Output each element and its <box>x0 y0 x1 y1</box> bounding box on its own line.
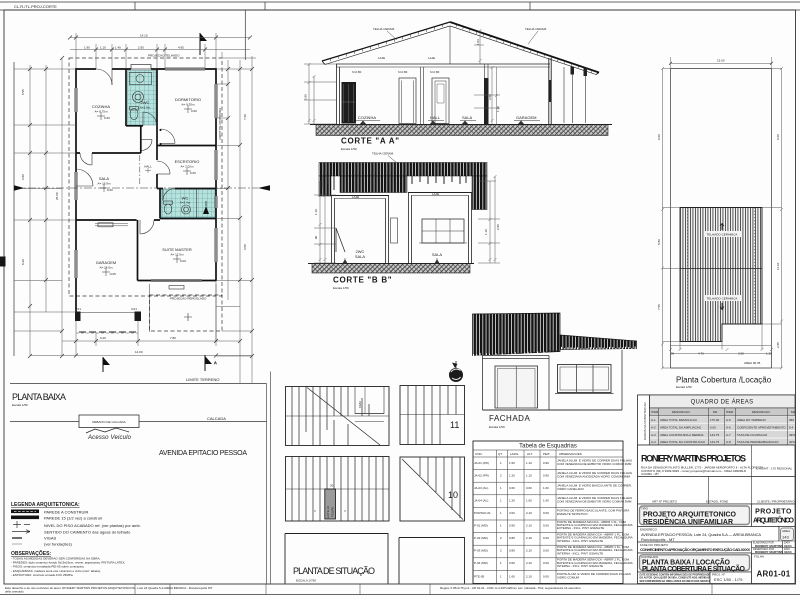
svg-text:COM VENEZIANA ANODIZADA VIDRO: COM VENEZIANA ANODIZADA VIDRO COMUM 3MM <box>557 475 631 479</box>
svg-text:9.60: 9.60 <box>776 134 780 140</box>
svg-text:HALL: HALL <box>144 165 152 169</box>
svg-text:0.60: 0.60 <box>509 561 515 565</box>
svg-text:V.01: V.01 <box>75 307 81 311</box>
svg-text:0.00: 0.00 <box>543 549 549 553</box>
svg-text:0.4: 0.4 <box>789 425 794 429</box>
svg-text:VIDRO CANELADO: VIDRO CANELADO <box>557 487 585 491</box>
svg-text:1.10: 1.10 <box>496 106 500 112</box>
svg-text:8.20: 8.20 <box>21 259 25 265</box>
svg-text:15.00: 15.00 <box>717 59 725 63</box>
svg-text:5.55: 5.55 <box>21 89 25 95</box>
svg-text:1.20: 1.20 <box>509 474 515 478</box>
svg-text:2.10: 2.10 <box>526 511 532 515</box>
svg-text:V.01: V.01 <box>131 307 137 311</box>
svg-text:COZINHA: COZINHA <box>358 115 376 120</box>
svg-text:A-8: A-8 <box>726 440 731 444</box>
svg-text:A-7: A-7 <box>726 433 731 437</box>
svg-text:ENDERECO: ENDERECO <box>640 528 658 532</box>
svg-text:AREA 96.35: AREA 96.35 <box>744 361 761 365</box>
svg-text:EXTERNA - INCL. PINT. ESMALTE: EXTERNA - INCL. PINT. ESMALTE <box>557 526 604 530</box>
svg-text:175.00: 175.00 <box>710 418 720 422</box>
svg-text:A-4: A-4 <box>651 440 656 444</box>
svg-text:.90: .90 <box>670 352 675 356</box>
svg-text:1.00: 1.00 <box>543 499 549 503</box>
svg-text:1.10: 1.10 <box>526 461 532 465</box>
svg-text:3.00: 3.00 <box>509 511 515 515</box>
svg-text:CORTE "A A": CORTE "A A" <box>341 137 400 146</box>
svg-text:AVENIDA EPITACIO PESSOA: AVENIDA EPITACIO PESSOA <box>159 450 247 457</box>
svg-text:P-04 (MD): P-04 (MD) <box>474 561 488 565</box>
svg-text:SALA: SALA <box>432 252 443 257</box>
svg-text:PTE-05: PTE-05 <box>474 575 485 579</box>
svg-text:2.80: 2.80 <box>496 224 500 230</box>
svg-text:AREA CONSTRUIDA A MEDIDA: AREA CONSTRUIDA A MEDIDA <box>660 433 704 437</box>
svg-text:1.10: 1.10 <box>314 209 318 215</box>
svg-text:INTERNA - INCL. PINT. ESMALTE: INTERNA - INCL. PINT. ESMALTE <box>557 551 603 555</box>
svg-text:COEFICIENTE APROVEITAMENTO: COEFICIENTE APROVEITAMENTO <box>737 425 786 429</box>
svg-text:1.60: 1.60 <box>543 486 549 490</box>
svg-text:DESCRICAO: DESCRICAO <box>752 410 771 414</box>
svg-text:Planta Cobertura /Locação: Planta Cobertura /Locação <box>676 376 772 385</box>
svg-text:C.AU/MT - 170 REGIONAL: C.AU/MT - 170 REGIONAL <box>756 467 793 471</box>
svg-text:2.10: 2.10 <box>526 536 532 540</box>
svg-text:SALA: SALA <box>99 176 110 181</box>
svg-text:FELIPE: FELIPE <box>331 507 335 517</box>
svg-text:A=3.4m: A=3.4m <box>180 201 191 205</box>
svg-text:SALA: SALA <box>462 115 473 120</box>
svg-text:INTERNA - INCL. PINT. ESMALTE: INTERNA - INCL. PINT. ESMALTE <box>557 539 603 543</box>
svg-text:2.80: 2.80 <box>488 94 492 100</box>
svg-text:9.60: 9.60 <box>657 134 661 140</box>
svg-text:PAREDE 15 (1/2 vez) a construi: PAREDE 15 (1/2 vez) a construir <box>44 516 103 521</box>
svg-text:JA-01 (PR): JA-01 (PR) <box>474 461 489 465</box>
svg-text:AREA TOTAL DA CONSTRUCAO: AREA TOTAL DA CONSTRUCAO <box>660 440 706 444</box>
svg-text:0.00: 0.00 <box>190 171 196 175</box>
svg-text:A-1: A-1 <box>651 418 656 422</box>
svg-text:PLANTA DE SITUAÇÃO: PLANTA DE SITUAÇÃO <box>293 566 375 576</box>
svg-text:AREA: AREA <box>782 529 790 533</box>
svg-text:5.80: 5.80 <box>657 239 661 245</box>
svg-text:11.10: 11.10 <box>776 262 780 270</box>
svg-text:M2: M2 <box>791 410 795 414</box>
svg-text:1.40: 1.40 <box>115 46 121 50</box>
svg-text:LAJE: LAJE <box>432 192 439 196</box>
svg-text:PROJECAO PERGOLADO: PROJECAO PERGOLADO <box>170 297 207 301</box>
svg-text:ART Nº PROJETO: ART Nº PROJETO <box>652 500 678 504</box>
svg-text:TELHA CERAM.: TELHA CERAM. <box>525 27 547 31</box>
svg-text:Escala 1/50: Escala 1/50 <box>676 385 692 389</box>
svg-text:PLANTA BAIXA: PLANTA BAIXA <box>12 392 66 402</box>
svg-text:TELHADO CERAMICA: TELHADO CERAMICA <box>707 297 738 301</box>
svg-text:- ESTRUTURA: concreto armado F: - ESTRUTURA: concreto armado FCK 25MPa. <box>11 573 74 577</box>
svg-text:FOLHA: FOLHA <box>754 555 764 559</box>
svg-text:LOTE 24: LOTE 24 <box>326 506 330 518</box>
svg-text:0.00: 0.00 <box>104 116 110 120</box>
svg-text:20: 20 <box>330 484 334 488</box>
svg-text:0.00: 0.00 <box>543 511 549 515</box>
svg-text:1.10: 1.10 <box>484 229 488 235</box>
svg-text:2.10: 2.10 <box>526 524 532 528</box>
svg-text:39%: 39% <box>789 433 795 437</box>
svg-text:X: X <box>343 510 347 512</box>
svg-text:0.90: 0.90 <box>543 474 549 478</box>
svg-text:COD.: COD. <box>475 452 483 456</box>
svg-text:ESMALTE SINTETICO: ESMALTE SINTETICO <box>557 512 588 516</box>
svg-text:ALT.: ALT. <box>527 452 533 456</box>
svg-text:0.00: 0.00 <box>180 259 186 263</box>
svg-text:1.20: 1.20 <box>509 499 515 503</box>
svg-text:A-6: A-6 <box>726 425 731 429</box>
svg-text:P-01 (MD): P-01 (MD) <box>474 524 488 528</box>
svg-text:CEM: CEM <box>358 401 362 408</box>
svg-text:7.80: 7.80 <box>170 336 176 340</box>
svg-text:dello anexado: dello anexado <box>5 590 24 594</box>
svg-text:Escala 1/50: Escala 1/50 <box>12 403 28 407</box>
svg-text:Escala 1/50: Escala 1/50 <box>489 425 505 429</box>
svg-text:2.95: 2.95 <box>138 46 144 50</box>
svg-text:LIMITE TERRENO: LIMITE TERRENO <box>186 377 220 382</box>
svg-text:PROJECAO TELHADO: PROJECAO TELHADO <box>218 108 222 140</box>
svg-text:0.60: 0.60 <box>509 486 515 490</box>
svg-text:AR01-01: AR01-01 <box>756 570 790 579</box>
svg-text:7.55: 7.55 <box>657 304 661 310</box>
svg-text:0.00: 0.00 <box>543 536 549 540</box>
svg-text:ESCRITORIO: ESCRITORIO <box>175 159 200 164</box>
svg-text:2.85: 2.85 <box>776 342 780 348</box>
svg-text:A-3: A-3 <box>651 433 656 437</box>
svg-text:10: 10 <box>448 490 458 500</box>
svg-text:AREA DO TERRENO: AREA DO TERRENO <box>737 418 766 422</box>
svg-text:PAREDE A CONSTRUIR: PAREDE A CONSTRUIR <box>44 510 88 515</box>
svg-text:P-03 (MD): P-03 (MD) <box>474 549 488 553</box>
svg-text:4.95: 4.95 <box>178 46 184 50</box>
svg-text:TELHA CERAM.: TELHA CERAM. <box>373 27 395 31</box>
svg-text:ARQUITETÔNICO: ARQUITETÔNICO <box>753 516 795 525</box>
svg-text:OBSERVACOES: OBSERVACOES <box>559 452 582 456</box>
svg-text:PORTAO-01: PORTAO-01 <box>474 511 491 515</box>
svg-text:JA-02 (PR): JA-02 (PR) <box>474 474 489 478</box>
svg-text:A=3.9m: A=3.9m <box>140 106 151 110</box>
svg-text:4.70: 4.70 <box>698 352 704 356</box>
svg-text:Regua: 0.05x0.75 px1 - AR 01-0: Regua: 0.05x0.75 px1 - AR 01-01 - FOR. A… <box>440 586 581 590</box>
svg-text:A-5: A-5 <box>726 418 731 422</box>
svg-text:ESTADO, FONE: ESTADO, FONE <box>706 500 728 504</box>
svg-text:1.60: 1.60 <box>509 575 515 579</box>
svg-text:COM VENEZIANA DE EMBUTIR VIDRO: COM VENEZIANA DE EMBUTIR VIDRO COMUM 3MM <box>557 462 632 466</box>
svg-text:143.75: 143.75 <box>710 440 720 444</box>
svg-text:A: A <box>214 360 217 365</box>
svg-text:ITEM: ITEM <box>726 410 734 414</box>
svg-text:6.50: 6.50 <box>243 244 247 250</box>
svg-text:VIGAS: VIGAS <box>44 536 57 541</box>
svg-text:2WC: 2WC <box>141 100 150 105</box>
svg-text:LAJE: LAJE <box>378 56 385 60</box>
svg-text:0.60: 0.60 <box>526 486 532 490</box>
svg-text:HALL: HALL <box>430 115 441 120</box>
svg-text:1.10: 1.10 <box>526 474 532 478</box>
svg-text:0.90: 0.90 <box>509 524 515 528</box>
svg-text:0.80: 0.80 <box>509 536 515 540</box>
svg-text:TELHA CERAM.: TELHA CERAM. <box>372 152 394 156</box>
svg-text:0.80: 0.80 <box>509 549 515 553</box>
svg-text:CLIENTE / PROPRIETARIO: CLIENTE / PROPRIETARIO <box>757 500 795 504</box>
svg-text:ESC 1/50 - 1/75: ESC 1/50 - 1/75 <box>714 577 743 582</box>
svg-text:360: 360 <box>789 418 794 422</box>
svg-text:INTERNA - INCL. PINT. ESMALTE: INTERNA - INCL. PINT. ESMALTE <box>557 564 603 568</box>
svg-text:7.60: 7.60 <box>243 114 247 120</box>
svg-text:h=2.80: h=2.80 <box>398 70 408 74</box>
svg-text:(ver fundações): (ver fundações) <box>44 542 72 547</box>
svg-text:CUIABA - MT: CUIABA - MT <box>641 472 659 476</box>
svg-text:COZINHA: COZINHA <box>92 104 110 109</box>
svg-text:ITEM: ITEM <box>651 410 659 414</box>
svg-text:2.80: 2.80 <box>304 94 308 100</box>
svg-text:1.50: 1.50 <box>509 461 515 465</box>
svg-text:NIVEL DO PISO ACABADO ref. (ve: NIVEL DO PISO ACABADO ref. (ver plantas)… <box>44 523 141 528</box>
svg-text:LEGENDA ARQUITETONICA:: LEGENDA ARQUITETONICA: <box>11 502 80 508</box>
svg-text:DESCRICAO: DESCRICAO <box>672 410 691 414</box>
svg-text:RONIERY MARTINS PROJETOS: RONIERY MARTINS PROJETOS <box>641 454 746 464</box>
svg-text:14.00: 14.00 <box>135 350 143 354</box>
svg-text:TAXA DE PERMEABILIZACAO: TAXA DE PERMEABILIZACAO <box>737 440 779 444</box>
svg-text:40%: 40% <box>789 440 795 444</box>
svg-text:0.00: 0.00 <box>543 561 549 565</box>
svg-text:1.90: 1.90 <box>84 46 90 50</box>
svg-text:ESCALA 1/750: ESCALA 1/750 <box>296 579 316 583</box>
svg-text:Escala 1/50: Escala 1/50 <box>333 286 349 290</box>
svg-text:2.10: 2.10 <box>526 561 532 565</box>
svg-text:6.80: 6.80 <box>21 174 25 180</box>
svg-text:LAJE: LAJE <box>428 56 435 60</box>
svg-text:CORTE "B B": CORTE "B B" <box>333 276 392 285</box>
svg-text:X: X <box>313 510 317 512</box>
svg-text:PEIT.: PEIT. <box>543 452 550 456</box>
svg-text:COM VENEZIANA DE EMBUTIR VIDRO: COM VENEZIANA DE EMBUTIR VIDRO COMUM 3MM <box>557 500 632 504</box>
svg-text:Escala 1/50: Escala 1/50 <box>341 147 357 151</box>
svg-text:QT: QT <box>498 452 502 456</box>
svg-text:TIPO: TIPO <box>641 507 649 511</box>
svg-text:P-02 (MD): P-02 (MD) <box>474 536 488 540</box>
svg-text:QUADRO DE ÁREAS: QUADRO DE ÁREAS <box>691 399 754 406</box>
svg-text:2.10: 2.10 <box>526 549 532 553</box>
svg-text:AREA TOTAL DA AMPLIACAO: AREA TOTAL DA AMPLIACAO <box>660 425 702 429</box>
svg-text:PROJECAO TELHADO: PROJECAO TELHADO <box>148 54 180 58</box>
svg-text:0.00: 0.00 <box>543 575 549 579</box>
svg-text:REBAIXO DE CALCADA: REBAIXO DE CALCADA <box>92 420 125 424</box>
svg-text:1.00: 1.00 <box>526 499 532 503</box>
svg-text:TELHADO CERAMICA: TELHADO CERAMICA <box>707 233 738 237</box>
svg-text:1.53: 1.53 <box>476 39 480 45</box>
svg-text:0.00: 0.00 <box>107 188 113 192</box>
svg-text:Rondonopolis - MT: Rondonopolis - MT <box>641 537 675 542</box>
svg-text:SUITE MASTER: SUITE MASTER <box>162 247 192 252</box>
svg-text:JA-03 (AL): JA-03 (AL) <box>474 486 488 490</box>
svg-text:6.20: 6.20 <box>100 336 106 340</box>
svg-text:VIDRO COMUM: VIDRO COMUM <box>557 575 580 579</box>
svg-text:143.75: 143.75 <box>710 433 720 437</box>
svg-text:Este desenho e de uso exclusiv: Este desenho e de uso exclusivo do autor… <box>5 586 212 590</box>
svg-text:AREA TOTAL DEMOLICAO: AREA TOTAL DEMOLICAO <box>660 418 698 422</box>
svg-text:PROJETO ARQUITETONICO: PROJETO ARQUITETONICO <box>643 512 737 519</box>
svg-text:FACHADA: FACHADA <box>489 414 530 423</box>
svg-text:A-2: A-2 <box>651 425 656 429</box>
svg-text:0.90: 0.90 <box>543 461 549 465</box>
svg-text:SALA: SALA <box>355 254 366 259</box>
svg-text:LARG.: LARG. <box>510 452 519 456</box>
svg-text:1.10: 1.10 <box>100 46 106 50</box>
svg-text:CALCADA: CALCADA <box>207 416 226 421</box>
svg-text:.90: .90 <box>314 235 318 240</box>
svg-text:DORMITORIO: DORMITORIO <box>175 97 201 102</box>
svg-text:SER CONFERIDOS NA OBRA ANTES D: SER CONFERIDOS NA OBRA ANTES DO INICIO D… <box>640 580 714 583</box>
svg-text:0.00: 0.00 <box>191 109 197 113</box>
svg-text:14.10: 14.10 <box>140 34 148 38</box>
svg-text:CONTEUDO: CONTEUDO <box>641 555 659 559</box>
svg-text:11: 11 <box>450 420 459 430</box>
svg-text:LAJE: LAJE <box>352 195 359 199</box>
svg-text:0.00: 0.00 <box>543 524 549 528</box>
svg-text:M2: M2 <box>713 410 717 414</box>
svg-text:Acesso Veiculo: Acesso Veiculo <box>87 435 132 441</box>
svg-text:DADOS DA CONSTRUCAO: DADOS DA CONSTRUCAO <box>643 402 647 440</box>
svg-text:TAXA DE OCUPACAO: TAXA DE OCUPACAO <box>737 433 768 437</box>
svg-text:3.50: 3.50 <box>738 352 744 356</box>
svg-text:CONHECIMENTO APROVAÇÃO ORÇAM: CONHECIMENTO APROVAÇÃO ORÇAMENTO EXECUÇÃ… <box>640 547 750 552</box>
svg-text:0.00: 0.00 <box>710 425 716 429</box>
svg-text:2.10: 2.10 <box>526 575 532 579</box>
svg-text:CL.R./TL.PROJ.CORTE: CL.R./TL.PROJ.CORTE <box>14 4 57 9</box>
svg-text:SENTIDO DO CAIMENTO das aguas: SENTIDO DO CAIMENTO das aguas do telhado <box>44 530 131 535</box>
svg-text:RESIDÊNCIA UNIFAMILIAR: RESIDÊNCIA UNIFAMILIAR <box>643 517 733 526</box>
svg-text:GARAGEM: GARAGEM <box>516 115 536 120</box>
svg-text:PLANTA BAIXA / LOCAÇÃO: PLANTA BAIXA / LOCAÇÃO <box>642 558 731 567</box>
svg-text:PROJETO: PROJETO <box>755 509 792 516</box>
svg-text:GARAGEM: GARAGEM <box>96 260 116 265</box>
svg-text:Tabela de Esquadrias: Tabela de Esquadrias <box>519 444 577 450</box>
svg-text:1.20: 1.20 <box>766 352 772 356</box>
svg-text:-0.05: -0.05 <box>109 272 116 276</box>
svg-text:h=2.80: h=2.80 <box>430 70 440 74</box>
svg-text:143: 143 <box>782 535 789 540</box>
svg-text:JA-04 (AL): JA-04 (AL) <box>474 499 488 503</box>
svg-text:25.00: 25.00 <box>55 192 59 200</box>
svg-text:h=2.80: h=2.80 <box>352 70 362 74</box>
